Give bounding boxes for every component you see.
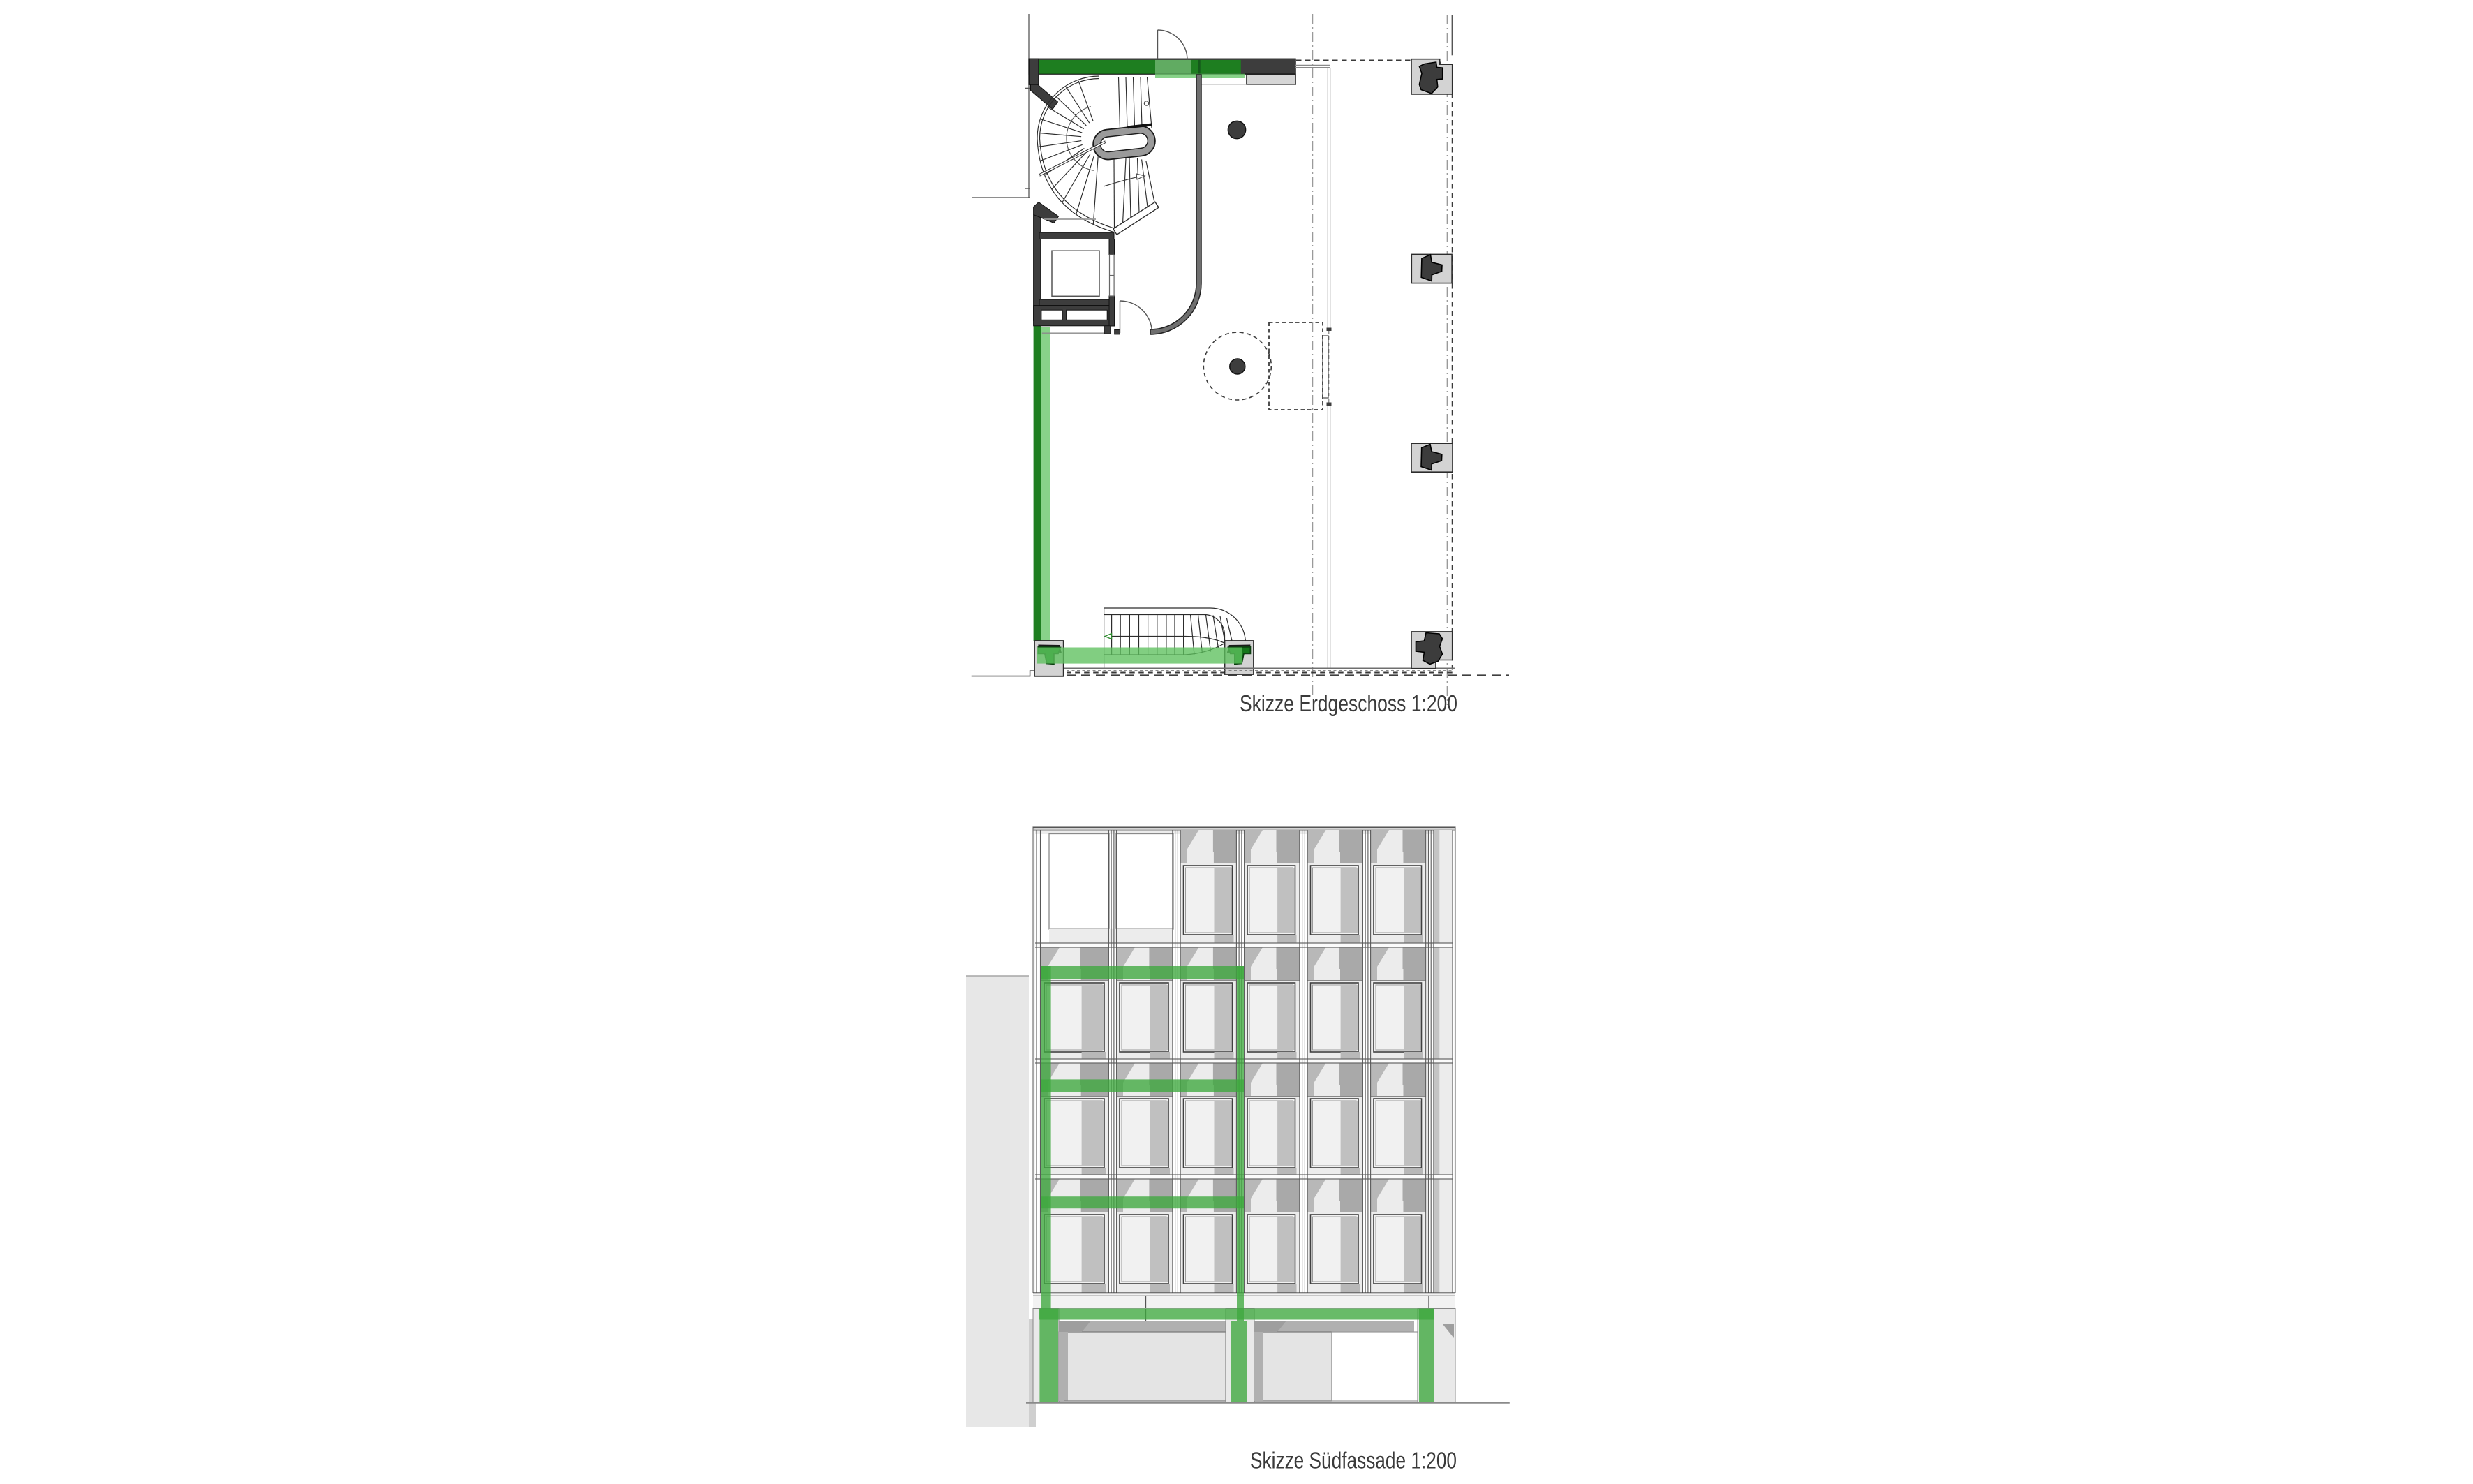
svg-text:Skizze Erdgeschoss 1:200: Skizze Erdgeschoss 1:200 xyxy=(1240,691,1457,717)
svg-text:Skizze Südfassade 1:200: Skizze Südfassade 1:200 xyxy=(1250,1448,1457,1474)
